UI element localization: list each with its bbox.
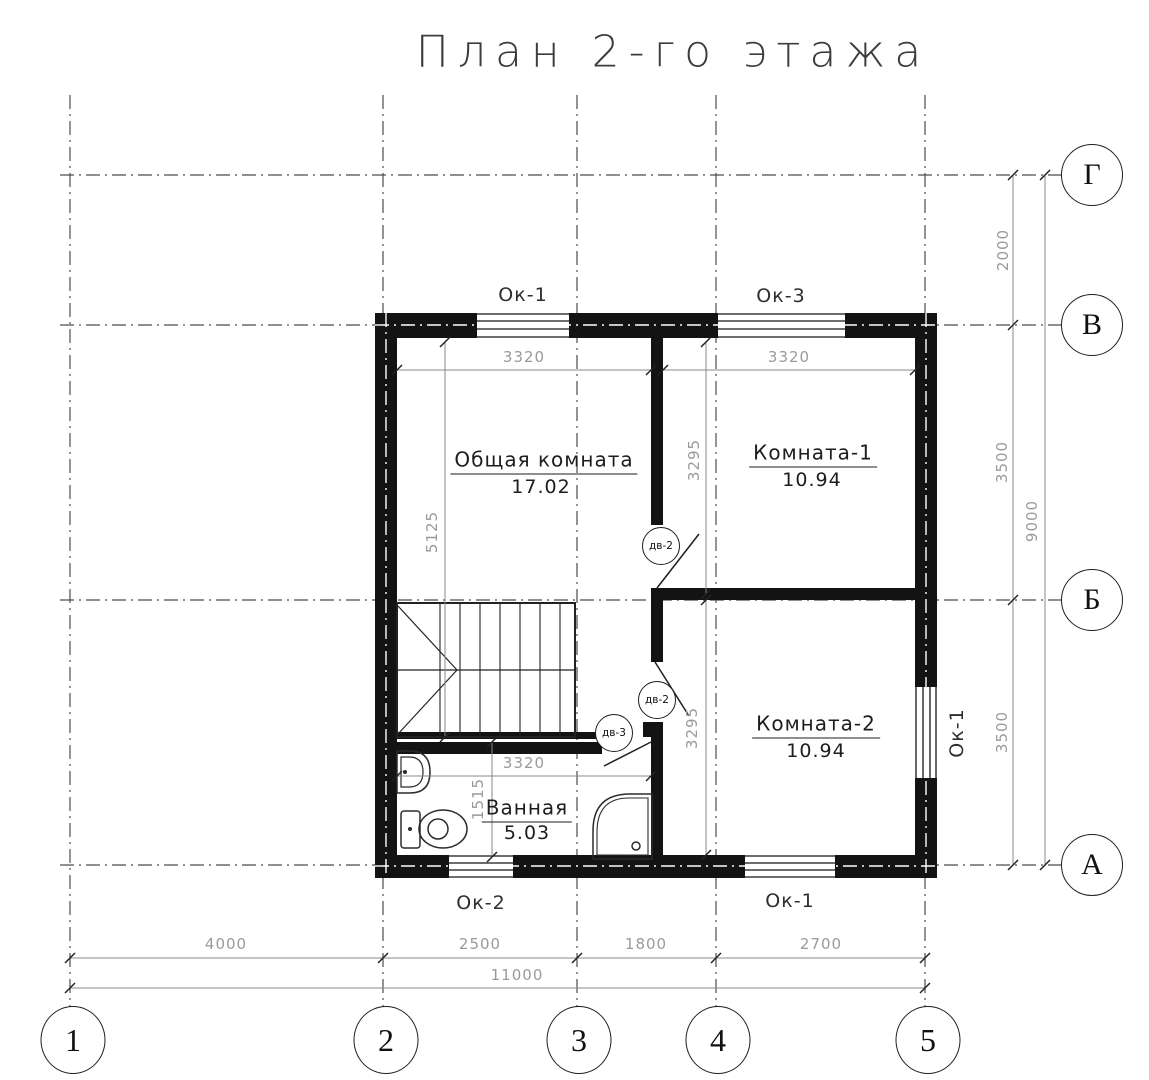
dim-right-2: 3500 (993, 441, 1011, 483)
dim-bottom-total: 11000 (491, 966, 544, 984)
dim-room1-width: 3320 (768, 348, 810, 366)
door-tag-room1: дв-2 (642, 527, 680, 565)
door-tag-room2: дв-2 (638, 681, 676, 719)
axis-col-1-label: 1 (65, 1022, 81, 1059)
dim-corridor-upper: 3295 (685, 439, 703, 481)
room-name-room2: Комната-2 (752, 712, 880, 739)
axis-row-g: Г (1061, 144, 1123, 206)
room-name-bath: Ванная (482, 796, 572, 823)
window-label-top-left: Ок-1 (498, 284, 547, 306)
drawing-title: План 2-го этажа (416, 27, 931, 78)
axis-row-g-label: Г (1083, 158, 1100, 192)
dim-bottom-3: 1800 (625, 935, 667, 953)
door-tag-room2-label: дв-2 (645, 694, 669, 706)
window-label-right-side: Ок-1 (946, 708, 968, 757)
toilet-symbol (401, 810, 467, 848)
door-tag-bath: дв-3 (595, 714, 633, 752)
axis-col-2: 2 (354, 1006, 419, 1074)
dim-living-width: 3320 (503, 348, 545, 366)
window-label-bottom-left: Ок-2 (456, 892, 505, 914)
window-label-top-right: Ок-3 (756, 285, 805, 307)
room-area-living: 17.02 (511, 476, 570, 498)
shower-symbol (593, 794, 652, 859)
dim-right-total: 9000 (1023, 500, 1041, 542)
axis-col-2-label: 2 (378, 1022, 394, 1059)
dim-corridor-lower: 3295 (683, 707, 701, 749)
axis-row-v: В (1061, 294, 1123, 356)
room-area-room1: 10.94 (782, 469, 841, 491)
dim-living-height: 5125 (423, 511, 441, 553)
dim-bottom-4: 2700 (800, 935, 842, 953)
room-name-living: Общая комната (450, 448, 637, 475)
axis-col-5-label: 5 (920, 1022, 936, 1059)
dim-right-3: 3500 (993, 711, 1011, 753)
dim-bottom-1: 4000 (205, 935, 247, 953)
dim-bath-width: 3320 (503, 754, 545, 772)
axis-col-3: 3 (547, 1006, 612, 1074)
axis-col-4-label: 4 (710, 1022, 726, 1059)
room-area-room2: 10.94 (786, 740, 845, 762)
floor-plan-drawing (0, 0, 1149, 1080)
floor-plan-page: План 2-го этажа Ок-1 Ок-3 Ок-2 Ок-1 Ок-1… (0, 0, 1149, 1080)
room-name-room1: Комната-1 (749, 441, 877, 468)
axis-row-b: Б (1061, 569, 1123, 631)
axis-col-4: 4 (686, 1006, 751, 1074)
stairs (397, 603, 575, 737)
door-tag-room1-label: дв-2 (649, 540, 673, 552)
dim-bottom-2: 2500 (459, 935, 501, 953)
axis-row-a-label: А (1081, 848, 1103, 882)
axis-row-b-label: Б (1083, 583, 1100, 617)
axis-row-a: А (1061, 834, 1123, 896)
room-area-bath: 5.03 (504, 822, 550, 844)
window-label-bottom-right: Ок-1 (765, 890, 814, 912)
axis-col-1: 1 (41, 1006, 106, 1074)
axis-col-5: 5 (896, 1006, 961, 1074)
dim-right-1: 2000 (994, 229, 1012, 271)
door-tag-bath-label: дв-3 (602, 727, 626, 739)
axis-col-3-label: 3 (571, 1022, 587, 1059)
dim-bath-height: 1515 (469, 778, 487, 820)
axis-row-v-label: В (1082, 308, 1102, 342)
